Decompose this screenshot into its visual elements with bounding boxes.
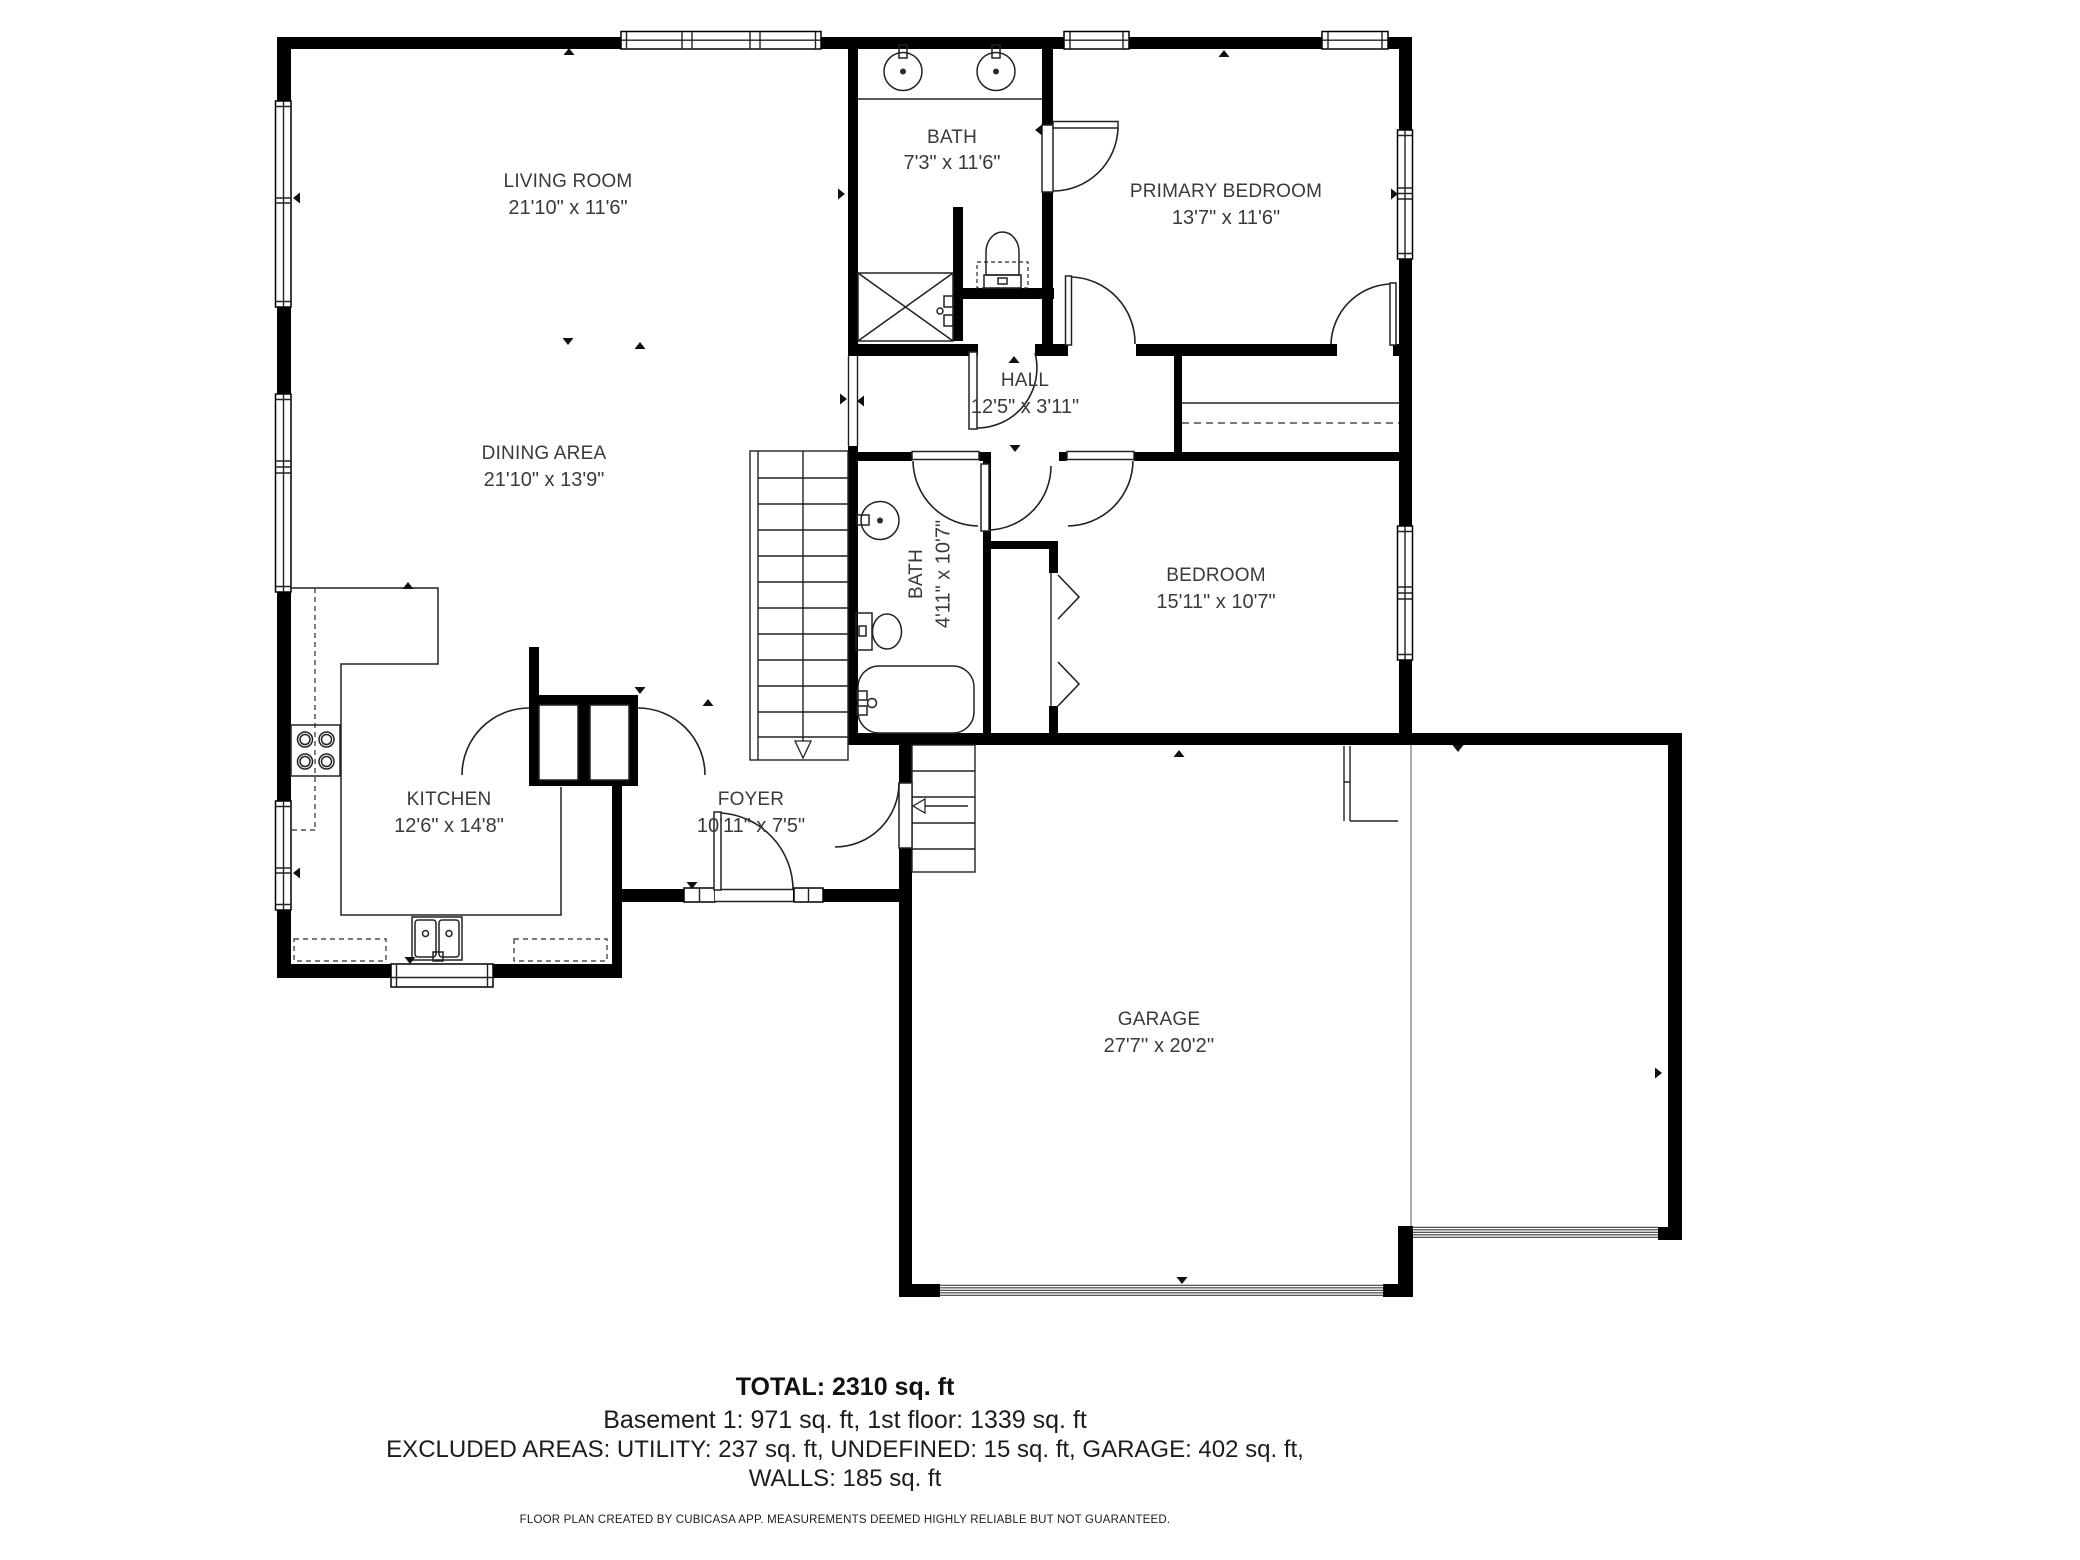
svg-text:12'6" x 14'8": 12'6" x 14'8" [394, 815, 504, 837]
svg-text:GARAGE: GARAGE [1118, 1009, 1201, 1030]
svg-text:Basement 1: 971 sq. ft, 1st fl: Basement 1: 971 sq. ft, 1st floor: 1339 … [603, 1406, 1087, 1434]
svg-text:FOYER: FOYER [718, 789, 784, 810]
svg-text:PRIMARY BEDROOM: PRIMARY BEDROOM [1130, 181, 1322, 202]
svg-text:21'10" x 13'9": 21'10" x 13'9" [484, 469, 605, 491]
svg-text:7'3" x 11'6": 7'3" x 11'6" [903, 152, 1000, 174]
svg-text:LIVING ROOM: LIVING ROOM [504, 171, 633, 192]
svg-text:BEDROOM: BEDROOM [1166, 565, 1266, 586]
svg-text:DINING AREA: DINING AREA [482, 443, 607, 464]
svg-text:FLOOR PLAN CREATED BY CUBICASA: FLOOR PLAN CREATED BY CUBICASA APP. MEAS… [520, 1514, 1171, 1526]
svg-text:27'7'' x 20'2'': 27'7'' x 20'2'' [1104, 1035, 1215, 1057]
svg-text:WALLS: 185 sq. ft: WALLS: 185 sq. ft [749, 1465, 942, 1492]
svg-text:KITCHEN: KITCHEN [407, 789, 492, 810]
svg-text:15'11" x 10'7": 15'11" x 10'7" [1156, 591, 1275, 613]
svg-text:12'5" x 3'11": 12'5" x 3'11" [971, 396, 1079, 418]
svg-text:HALL: HALL [1001, 370, 1049, 391]
svg-text:TOTAL: 2310 sq. ft: TOTAL: 2310 sq. ft [736, 1373, 955, 1401]
svg-text:10'11" x 7'5": 10'11" x 7'5" [697, 815, 805, 837]
svg-text:EXCLUDED AREAS: UTILITY: 237 s: EXCLUDED AREAS: UTILITY: 237 sq. ft, UND… [386, 1436, 1304, 1463]
svg-text:21'10" x 11'6": 21'10" x 11'6" [508, 197, 627, 219]
svg-text:4'11" x 10'7": 4'11" x 10'7" [932, 520, 954, 628]
svg-text:BATH: BATH [927, 127, 977, 148]
svg-text:BATH: BATH [906, 549, 927, 599]
svg-text:13'7" x 11'6": 13'7" x 11'6" [1172, 207, 1280, 229]
